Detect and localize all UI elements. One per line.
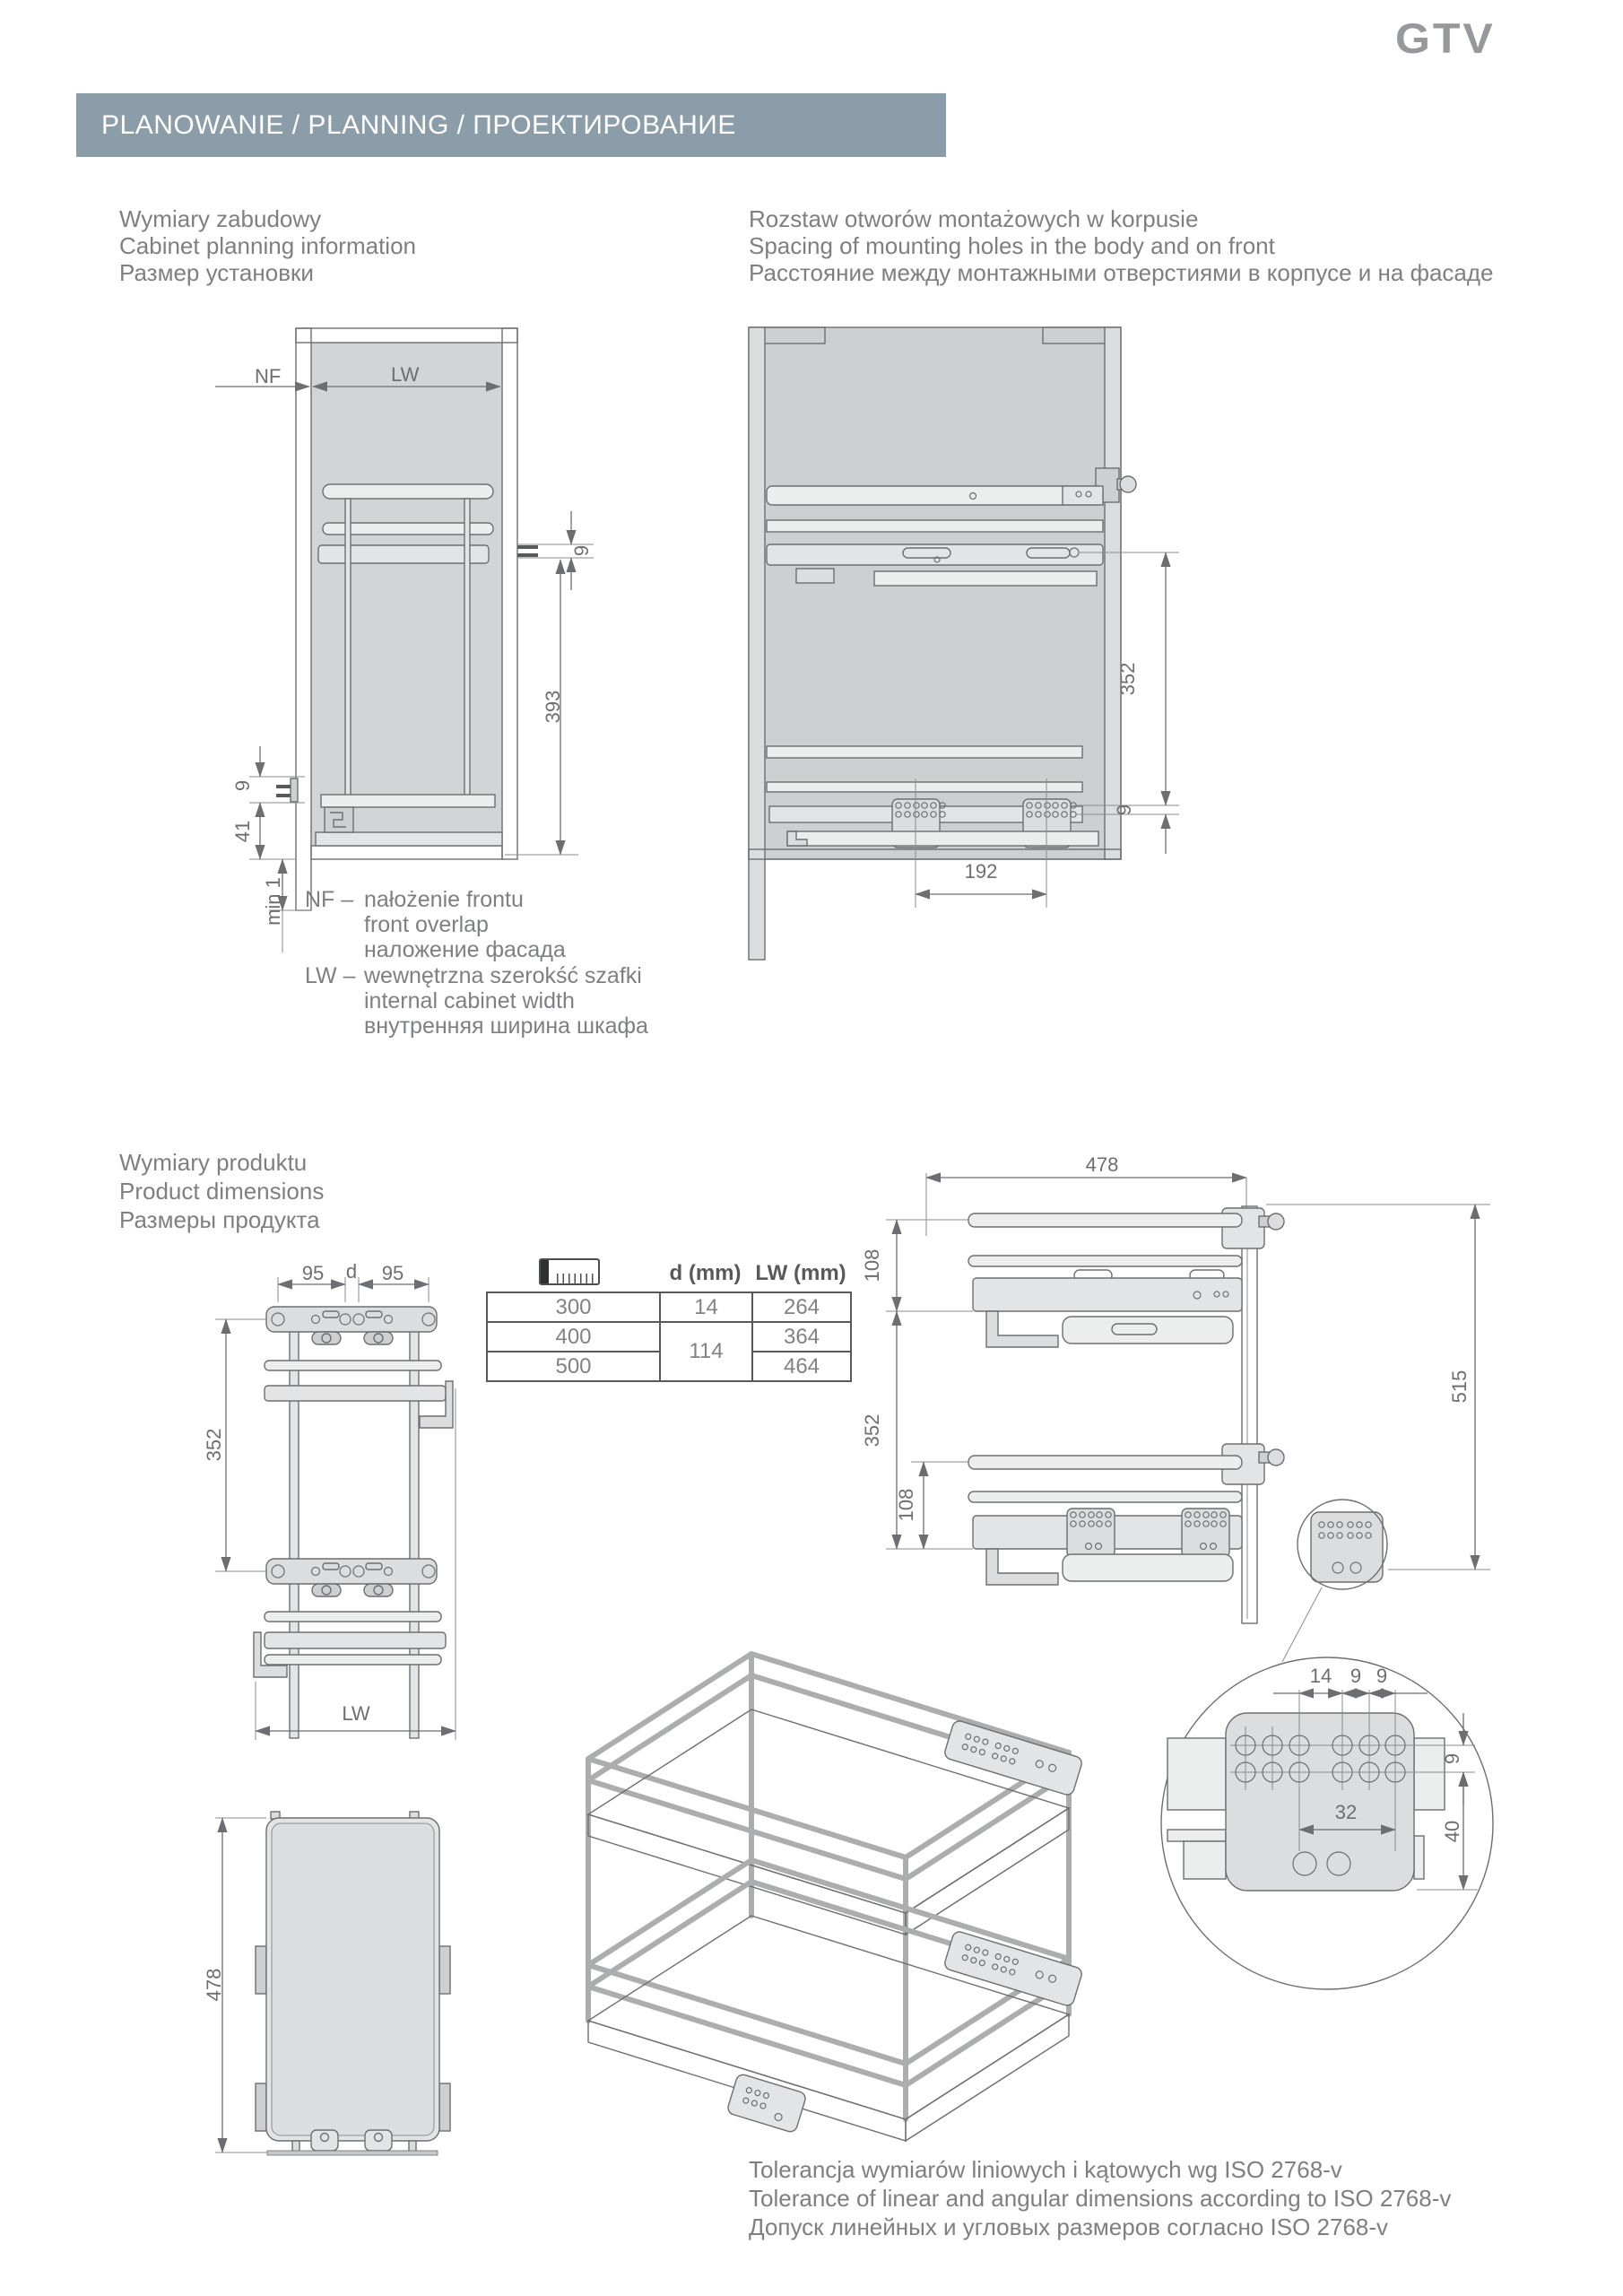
dim-352-side: 352 bbox=[862, 1404, 883, 1457]
dim-108-top: 108 bbox=[862, 1241, 883, 1290]
basket-bracket-front bbox=[726, 2073, 807, 2133]
technical-drawings bbox=[0, 0, 1623, 2296]
drawing-3d-basket bbox=[588, 1654, 1083, 2141]
dim-nf: NF bbox=[255, 365, 281, 388]
dim-515: 515 bbox=[1449, 1360, 1471, 1413]
side-plate-left bbox=[1067, 1509, 1115, 1557]
drawing-cabinet-section bbox=[215, 328, 594, 952]
dim-9-detail-right: 9 bbox=[1442, 1745, 1463, 1772]
dim-192: 192 bbox=[954, 860, 1008, 883]
dim-95-right: 95 bbox=[370, 1262, 415, 1285]
dim-108-bottom: 108 bbox=[896, 1481, 917, 1529]
dim-lw: LW bbox=[391, 363, 419, 387]
dim-352-top: 352 bbox=[204, 1418, 225, 1472]
dim-9-right: 9 bbox=[571, 537, 593, 564]
dim-478-tray: 478 bbox=[204, 1958, 225, 2012]
dim-352-body: 352 bbox=[1117, 652, 1139, 706]
dim-32-detail: 32 bbox=[1324, 1801, 1368, 1824]
drawing-product-top bbox=[215, 1277, 456, 1740]
dim-95-left: 95 bbox=[291, 1262, 335, 1285]
dim-393: 393 bbox=[542, 680, 564, 734]
basket-bracket-top bbox=[943, 1719, 1083, 1796]
catalog-page: GTV PLANOWANIE / PLANNING / ПРОЕКТИРОВАН… bbox=[0, 0, 1623, 2296]
dim-min1: min 1 bbox=[263, 870, 284, 933]
dim-14-detail: 14 bbox=[1298, 1665, 1343, 1688]
side-plate-right bbox=[1182, 1509, 1229, 1557]
dim-41: 41 bbox=[232, 813, 254, 849]
front-fixing-plate bbox=[1311, 1512, 1383, 1582]
dim-lw-bottom: LW bbox=[329, 1702, 383, 1726]
dim-9b-detail: 9 bbox=[1368, 1665, 1395, 1688]
dim-478-side: 478 bbox=[1075, 1153, 1129, 1177]
drawing-product-side bbox=[886, 1173, 1490, 1662]
dim-40-detail: 40 bbox=[1442, 1813, 1463, 1849]
dim-9-left: 9 bbox=[232, 772, 254, 799]
dim-d: d bbox=[338, 1260, 365, 1283]
drawing-tray-top bbox=[215, 1812, 450, 2155]
dim-9a-detail: 9 bbox=[1342, 1665, 1369, 1688]
dim-9-body: 9 bbox=[1114, 796, 1135, 823]
